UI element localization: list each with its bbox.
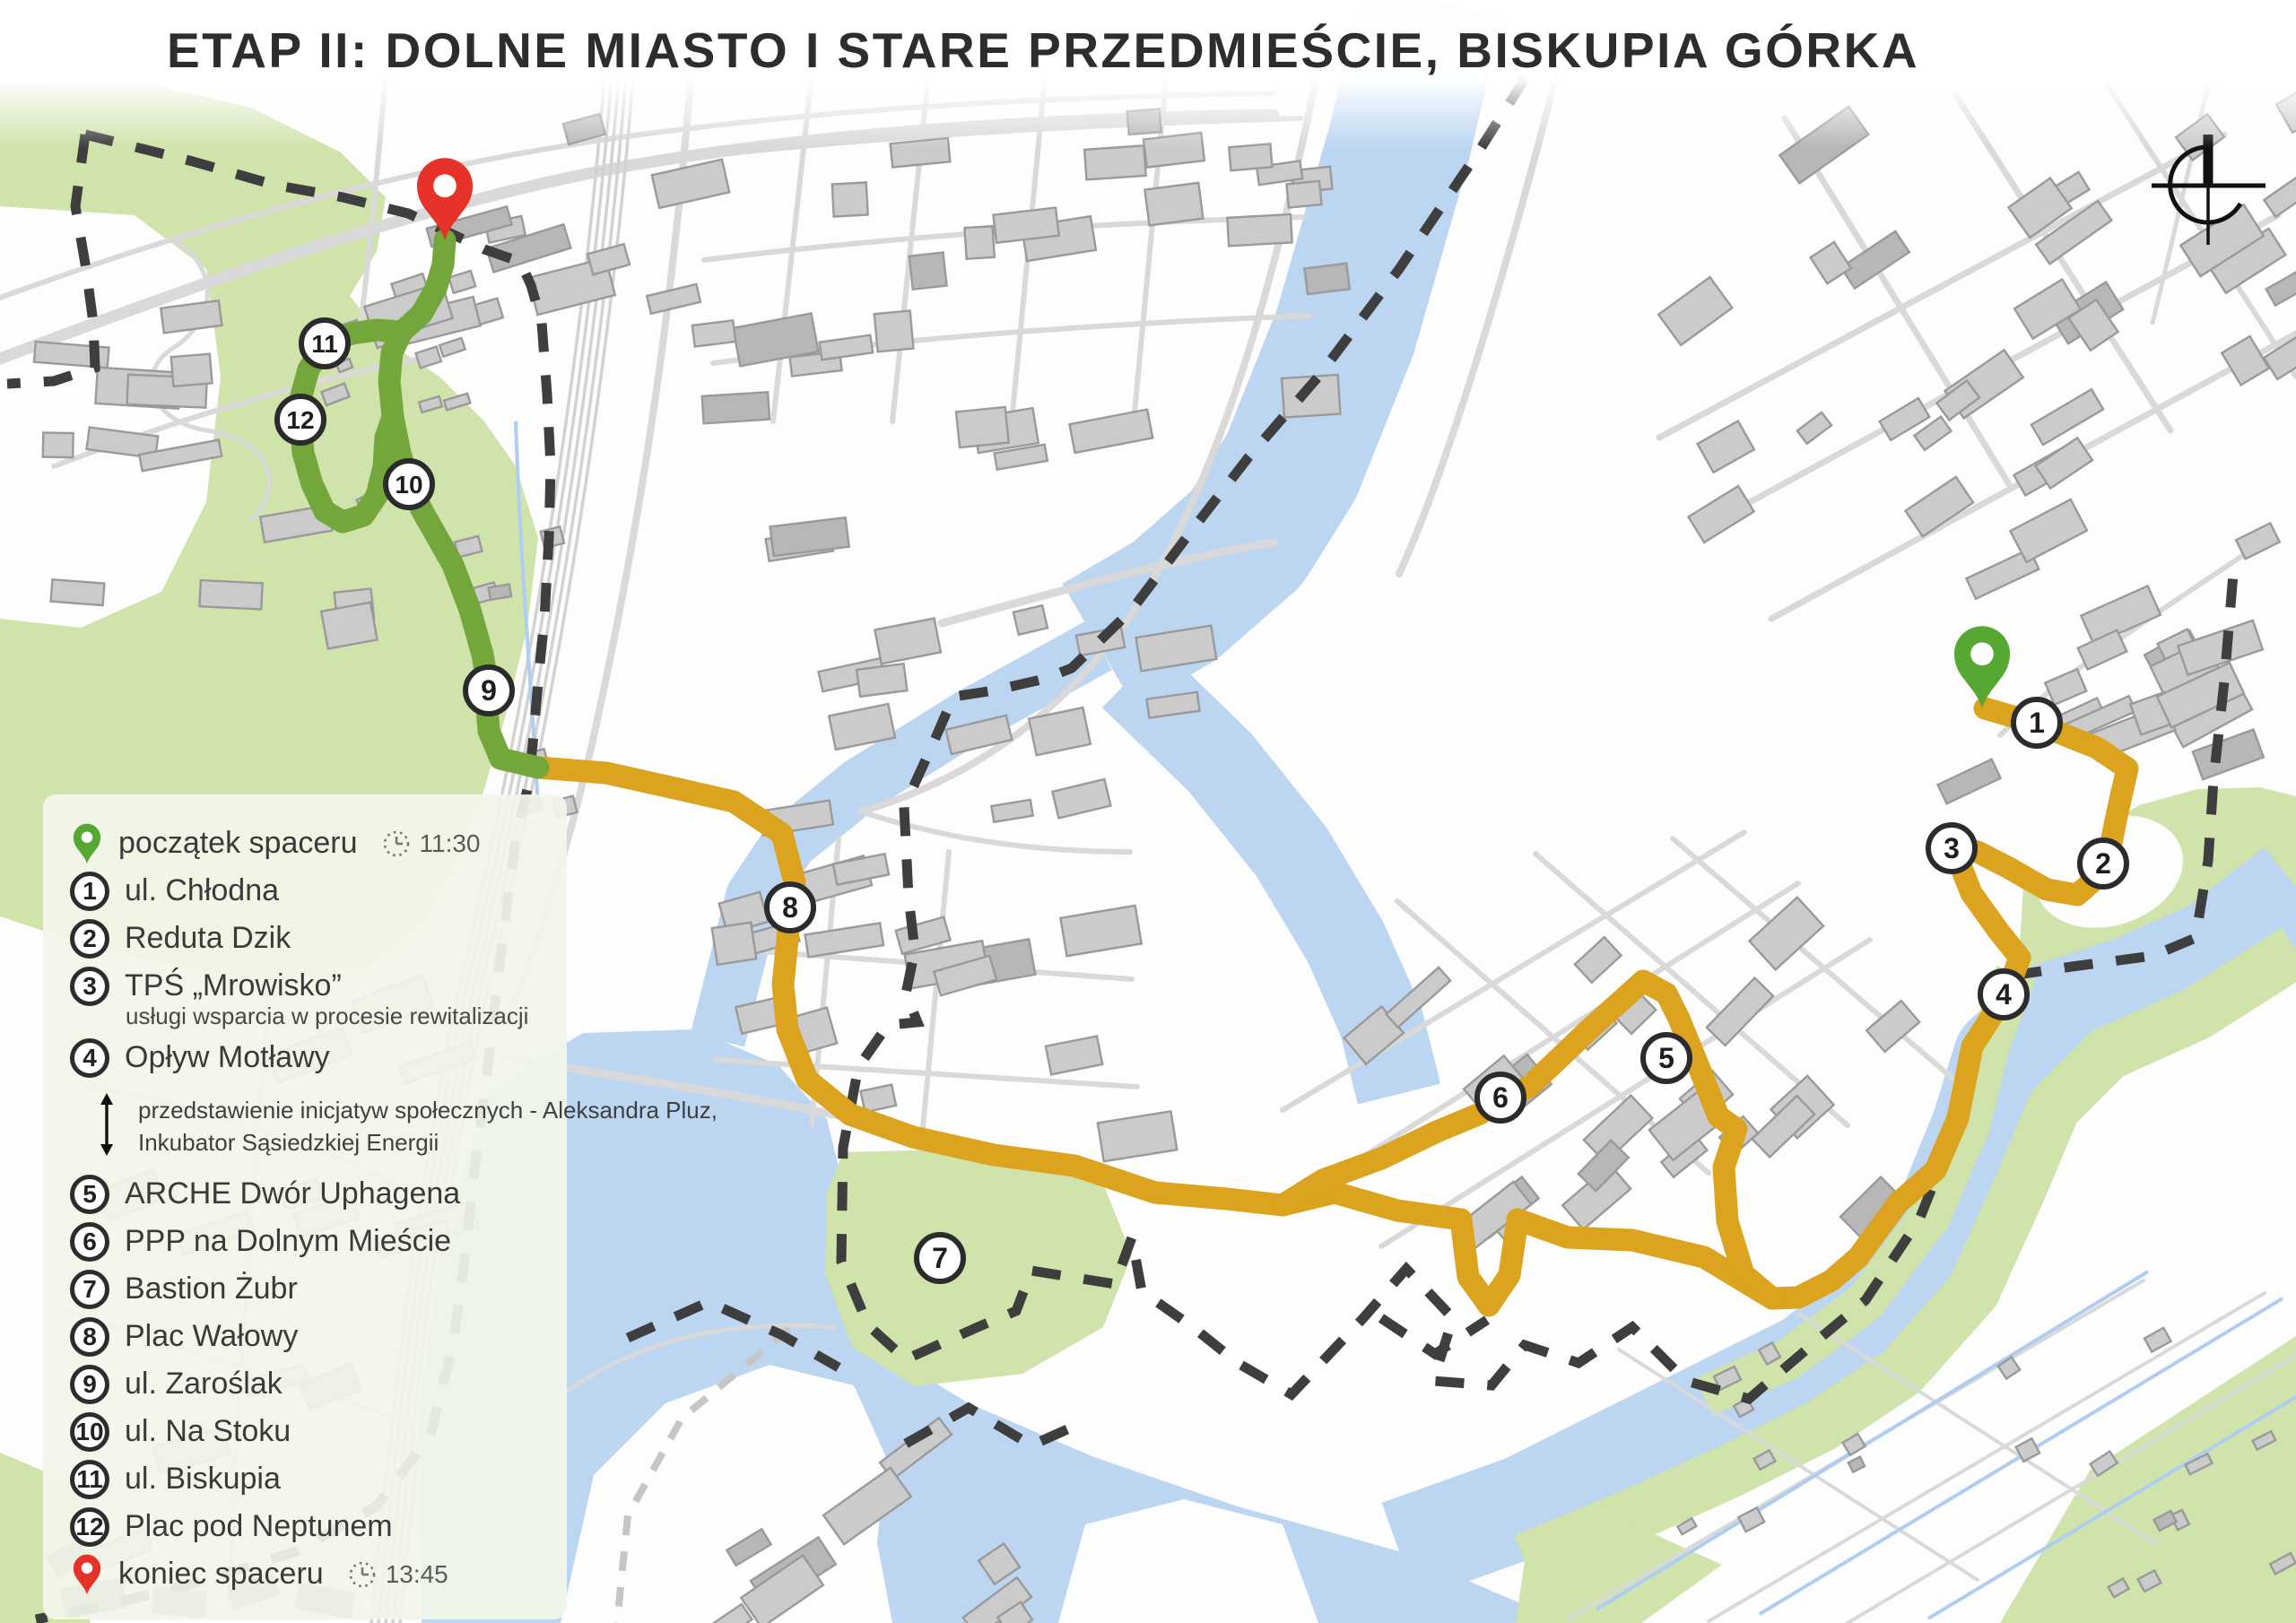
legend-item-label: ARCHE Dwór Uphagena xyxy=(125,1176,460,1211)
double-arrow-icon xyxy=(99,1092,115,1161)
start-time: 11:30 xyxy=(420,829,481,858)
legend-item-label: Bastion Żubr xyxy=(125,1271,298,1306)
map-marker-5: 5 xyxy=(1643,1035,1690,1081)
start-pin-icon xyxy=(70,820,106,867)
stop-number-badge: 5 xyxy=(70,1175,109,1214)
clock-icon xyxy=(381,829,412,859)
stop-number-badge: 2 xyxy=(70,919,109,959)
legend-start-row: początek spaceru 11:30 xyxy=(70,820,567,867)
legend-end-row: koniec spaceru 13:45 xyxy=(70,1550,567,1598)
map-marker-4: 4 xyxy=(1980,971,2027,1018)
legend-item-4: 4 Opływ Motławy xyxy=(70,1034,567,1081)
stop-number-badge: 4 xyxy=(70,1038,109,1078)
legend-item-label: ul. Na Stoku xyxy=(125,1414,291,1449)
stop-number-badge: 9 xyxy=(70,1365,109,1404)
legend-item-1: 1 ul. Chłodna xyxy=(70,867,567,915)
svg-text:5: 5 xyxy=(1658,1042,1674,1074)
legend-item-sublabel: usługi wsparcia w procesie rewitalizacji xyxy=(126,1002,567,1030)
map-marker-10: 10 xyxy=(386,461,432,508)
legend-item-label: Reduta Dzik xyxy=(125,921,291,956)
legend-item-6: 6 PPP na Dolnym Mieście xyxy=(70,1218,567,1265)
legend-item-2: 2 Reduta Dzik xyxy=(70,915,567,962)
map-marker-3: 3 xyxy=(1928,825,1975,872)
legend-item-9: 9 ul. Zaroślak xyxy=(70,1360,567,1408)
svg-text:2: 2 xyxy=(2095,847,2111,880)
stop-number-badge: 7 xyxy=(70,1270,109,1309)
legend-item-label: ul. Biskupia xyxy=(125,1462,281,1497)
svg-text:4: 4 xyxy=(1996,978,2012,1011)
legend-note-line: Inkubator Sąsiedzkiej Energii xyxy=(138,1127,717,1159)
stop-number-badge: 8 xyxy=(70,1317,109,1357)
svg-text:3: 3 xyxy=(1944,832,1960,864)
legend-end-label: koniec spaceru xyxy=(118,1557,324,1592)
legend-item-label: Opływ Motławy xyxy=(125,1040,330,1075)
legend-note-line: przedstawienie inicjatyw społecznych - A… xyxy=(138,1095,717,1126)
page-title: ETAP II: DOLNE MIASTO I STARE PRZEDMIEŚC… xyxy=(167,22,1919,79)
clock-icon xyxy=(347,1559,378,1590)
svg-text:9: 9 xyxy=(481,674,497,707)
stop-number-badge: 10 xyxy=(70,1412,109,1452)
svg-text:6: 6 xyxy=(1492,1081,1509,1114)
legend-start-label: początek spaceru xyxy=(118,826,358,861)
legend-item-11: 11 ul. Biskupia xyxy=(70,1455,567,1503)
map-marker-12: 12 xyxy=(277,396,324,443)
legend-item-5: 5 ARCHE Dwór Uphagena xyxy=(70,1170,567,1218)
map-marker-6: 6 xyxy=(1477,1074,1524,1121)
legend-item-10: 10 ul. Na Stoku xyxy=(70,1408,567,1455)
legend-note: przedstawienie inicjatyw społecznych - A… xyxy=(99,1092,567,1161)
svg-text:12: 12 xyxy=(286,406,314,434)
end-time: 13:45 xyxy=(386,1560,448,1589)
stop-number-badge: 1 xyxy=(70,872,109,911)
map-marker-9: 9 xyxy=(465,667,512,714)
svg-text:10: 10 xyxy=(395,471,422,499)
stop-number-badge: 6 xyxy=(70,1222,109,1262)
end-pin-icon xyxy=(70,1551,106,1598)
map-poster: 123456789101112 ETAP II: DOLNE MIASTO I … xyxy=(0,0,2296,1623)
svg-text:7: 7 xyxy=(932,1242,948,1274)
legend-item-label: Plac pod Neptunem xyxy=(125,1509,393,1544)
svg-text:8: 8 xyxy=(782,891,798,924)
legend-panel: początek spaceru 11:30 1 ul. Chłodna 2 R… xyxy=(43,794,567,1619)
legend-item-8: 8 Plac Wałowy xyxy=(70,1313,567,1360)
stop-number-badge: 12 xyxy=(70,1507,109,1547)
legend-item-7: 7 Bastion Żubr xyxy=(70,1265,567,1313)
legend-item-label: ul. Zaroślak xyxy=(125,1367,283,1402)
stop-number-badge: 3 xyxy=(70,967,109,1006)
svg-text:1: 1 xyxy=(2029,707,2045,739)
map-marker-8: 8 xyxy=(767,884,813,931)
legend-item-label: TPŚ „Mrowisko” xyxy=(125,968,342,1003)
map-marker-2: 2 xyxy=(2080,840,2126,887)
map-marker-1: 1 xyxy=(2013,699,2060,746)
map-marker-11: 11 xyxy=(301,320,348,367)
stop-number-badge: 11 xyxy=(70,1460,109,1499)
svg-text:11: 11 xyxy=(311,330,338,358)
legend-item-12: 12 Plac pod Neptunem xyxy=(70,1503,567,1550)
legend-item-label: Plac Wałowy xyxy=(125,1319,298,1354)
legend-item-label: PPP na Dolnym Mieście xyxy=(125,1224,451,1259)
map-marker-7: 7 xyxy=(917,1235,963,1281)
legend-item-label: ul. Chłodna xyxy=(125,873,279,908)
